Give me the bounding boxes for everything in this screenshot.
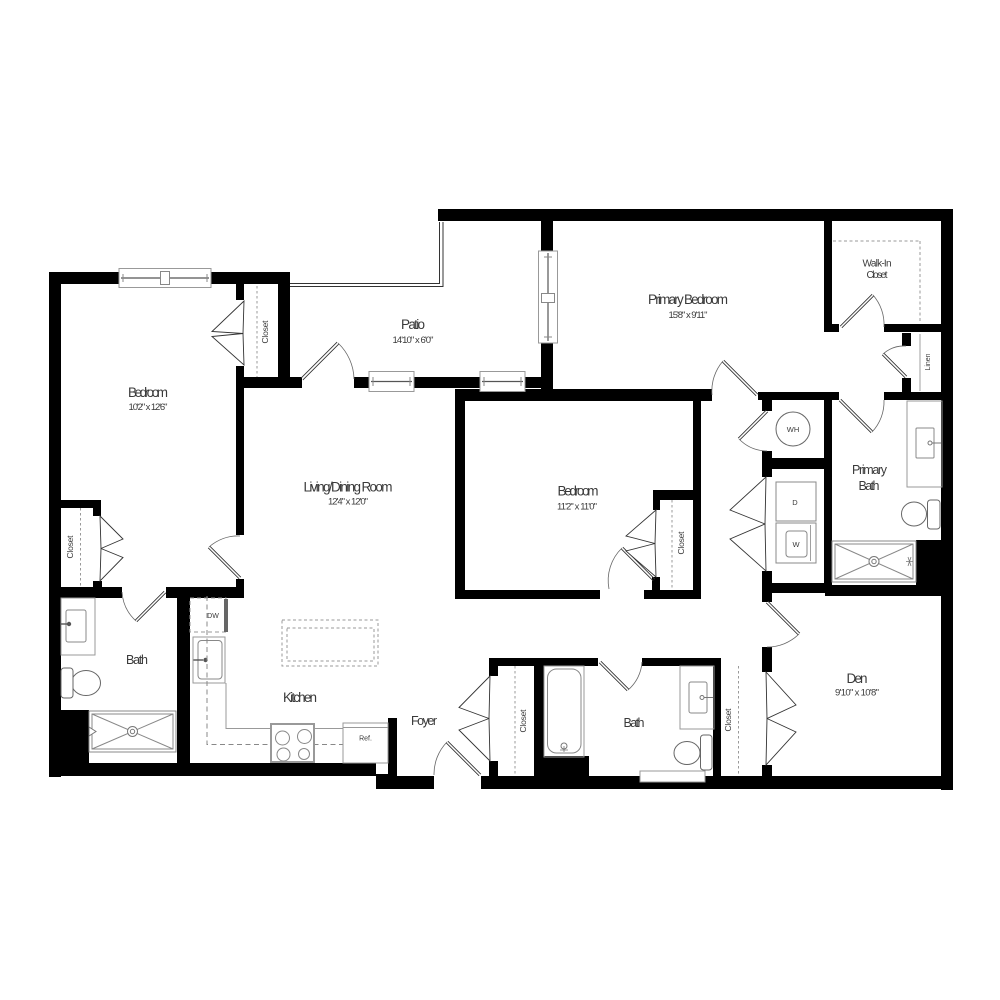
svg-text:Closet: Closet — [65, 535, 75, 559]
svg-text:10'2" x 12'6": 10'2" x 12'6" — [129, 402, 168, 413]
svg-text:Linen: Linen — [925, 353, 932, 370]
svg-text:11'2" x 11'0": 11'2" x 11'0" — [557, 502, 597, 513]
svg-text:Den: Den — [847, 671, 868, 686]
svg-text:Bath: Bath — [126, 653, 148, 667]
svg-text:Walk-In: Walk-In — [863, 259, 892, 270]
svg-text:12'4" x 12'0": 12'4" x 12'0" — [328, 497, 368, 508]
svg-text:Bedroom: Bedroom — [558, 484, 599, 499]
svg-text:Closet: Closet — [723, 708, 733, 732]
svg-text:Closet: Closet — [867, 270, 888, 281]
svg-text:15'8" x 9'11": 15'8" x 9'11" — [669, 310, 708, 321]
svg-text:14'10" x 6'0": 14'10" x 6'0" — [393, 335, 434, 346]
svg-text:Primary Bedroom: Primary Bedroom — [648, 292, 728, 307]
svg-text:Primary: Primary — [852, 463, 888, 477]
svg-text:WH: WH — [787, 425, 800, 434]
svg-text:Bath: Bath — [859, 479, 880, 493]
svg-text:Bedroom: Bedroom — [128, 385, 168, 400]
svg-text:Closet: Closet — [260, 320, 270, 344]
svg-text:W: W — [792, 540, 800, 549]
svg-text:D: D — [792, 498, 798, 507]
svg-text:Kitchen: Kitchen — [283, 690, 317, 705]
svg-text:Living/Dining Room: Living/Dining Room — [304, 480, 393, 495]
svg-text:DW: DW — [207, 613, 219, 620]
svg-text:9'10" x 10'8": 9'10" x 10'8" — [835, 688, 879, 699]
svg-text:Patio: Patio — [401, 317, 425, 332]
svg-text:Bath: Bath — [624, 716, 645, 730]
svg-text:Closet: Closet — [676, 531, 686, 555]
svg-text:Ref.: Ref. — [359, 736, 372, 743]
svg-text:Closet: Closet — [518, 709, 528, 733]
svg-text:Foyer: Foyer — [411, 714, 437, 728]
